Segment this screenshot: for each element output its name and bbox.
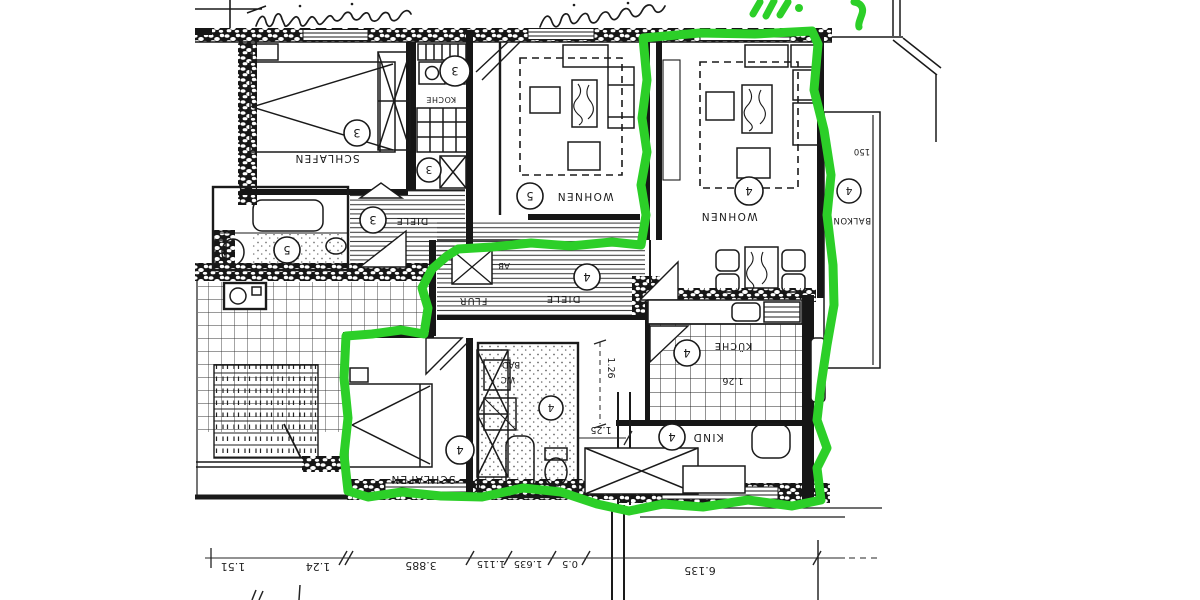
label-kind-4: KIND <box>692 431 724 443</box>
number-koche-3: 3 <box>451 64 458 78</box>
dim-3: 1.115 <box>477 558 506 569</box>
label-wohnen-5: WOHNEN <box>556 190 613 202</box>
label-kueche-4: KÜCHE <box>714 340 753 351</box>
number-bad-5: 5 <box>283 243 290 257</box>
floor-plan-scan: SCHLAFEN 3 3 KOCHE 3 3 DIELE 5 5 WOHNEN … <box>0 0 1200 600</box>
interior-dimensions: 1.26 1.25 <box>578 340 632 445</box>
bed-schlafen-3 <box>250 44 395 152</box>
number-balkon: 4 <box>845 184 852 196</box>
number-diele-4: 4 <box>583 270 590 284</box>
dim-4: 1.635 <box>514 558 543 569</box>
green-scribble-marks <box>753 1 863 27</box>
dim-2: 3.885 <box>405 559 437 572</box>
number-wohnen-5: 5 <box>526 189 533 203</box>
label-diele-4: DIELE <box>546 293 581 304</box>
number-bad-4: 4 <box>547 401 554 413</box>
number-schlafen-4: 4 <box>456 443 463 457</box>
bed-schlafen-4 <box>348 368 432 467</box>
label-balkon: BALKON <box>833 215 871 225</box>
label-schlafen-3: SCHLAFEN <box>294 152 359 164</box>
label-schlafen-4: SCHLAFEN <box>390 473 455 485</box>
dining-set <box>716 247 805 292</box>
dim-5: 0.5 <box>562 558 578 569</box>
dim-balkon: 150 <box>854 146 870 156</box>
green-dot <box>795 4 803 12</box>
label-wohnen-4: WOHNEN <box>700 210 757 222</box>
shaft-box <box>224 283 266 309</box>
kueche-4-counter <box>648 300 802 324</box>
dim-kueche-4: 1.26 <box>722 375 743 386</box>
number-schlafen-3: 3 <box>353 126 360 140</box>
dimension-row: 1.51 1.24 3.885 1.115 1.635 0.5 6.135 <box>205 548 880 600</box>
dim-1: 1.24 <box>306 560 331 573</box>
number-ab-3: 3 <box>426 163 433 176</box>
pencil-ticks <box>252 585 300 600</box>
number-kueche-4: 4 <box>683 346 690 360</box>
number-kind-4: 4 <box>668 430 675 444</box>
number-wohnen-4: 4 <box>745 184 752 198</box>
wardrobe-schlafen-3 <box>378 52 410 150</box>
dim-corridor: 1.26 <box>605 357 616 378</box>
wohnen-5-furniture <box>520 45 634 175</box>
dim-kind: 1.25 <box>590 424 611 435</box>
label-ab-4: AB <box>498 260 510 270</box>
dim-0: 1.51 <box>221 560 246 573</box>
dim-6: 6.135 <box>684 564 716 577</box>
scanned-floor-plan-page: SCHLAFEN 3 3 KOCHE 3 3 DIELE 5 5 WOHNEN … <box>0 0 1200 600</box>
label-diele-3: DIELE <box>396 215 428 226</box>
wohnen-4-furniture <box>663 45 820 188</box>
label-wc-4: WC <box>501 374 515 384</box>
handwritten-note <box>256 2 665 27</box>
number-diele-3: 3 <box>369 213 376 227</box>
label-flur-4: FLUR <box>459 295 488 306</box>
label-bad-4: BAD <box>501 359 520 369</box>
label-koche-3: KOCHE <box>426 95 456 104</box>
